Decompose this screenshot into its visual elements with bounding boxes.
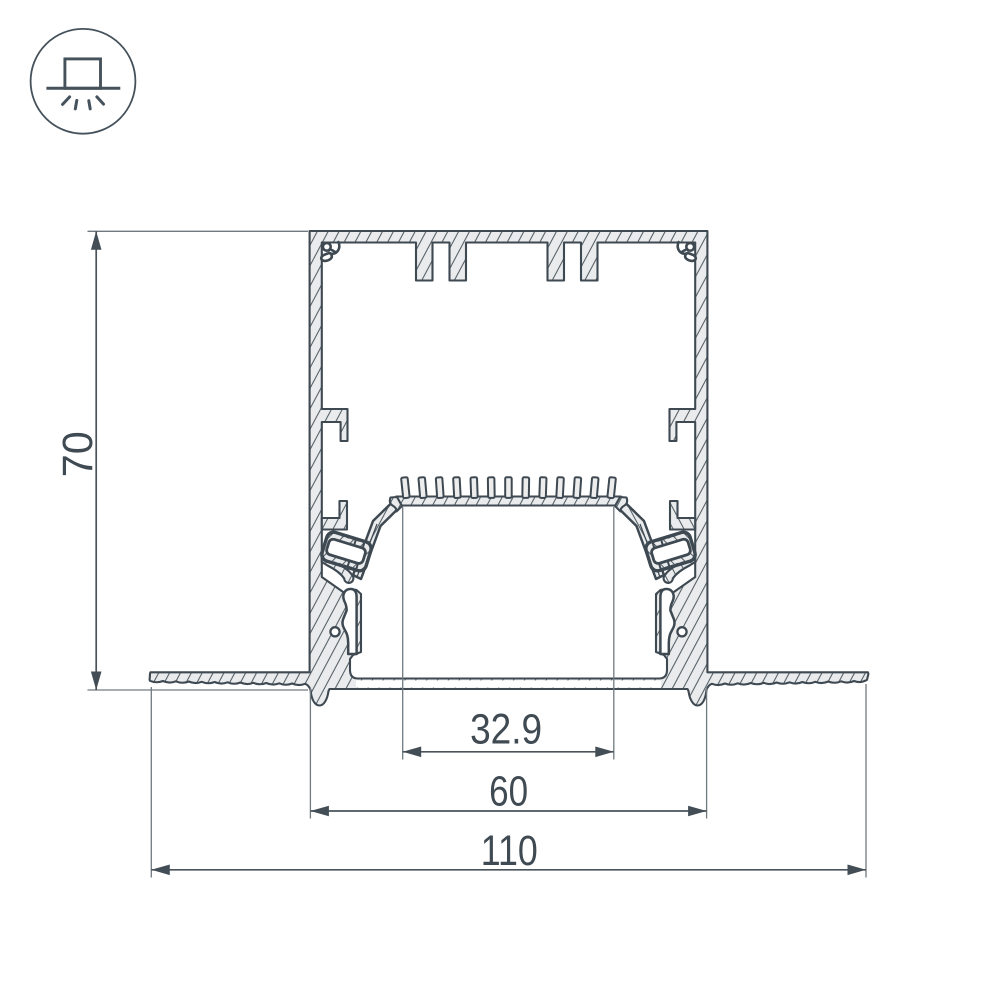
svg-text:60: 60 — [489, 769, 528, 816]
svg-text:110: 110 — [481, 828, 538, 875]
svg-text:70: 70 — [55, 431, 102, 477]
svg-text:32.9: 32.9 — [470, 707, 542, 754]
